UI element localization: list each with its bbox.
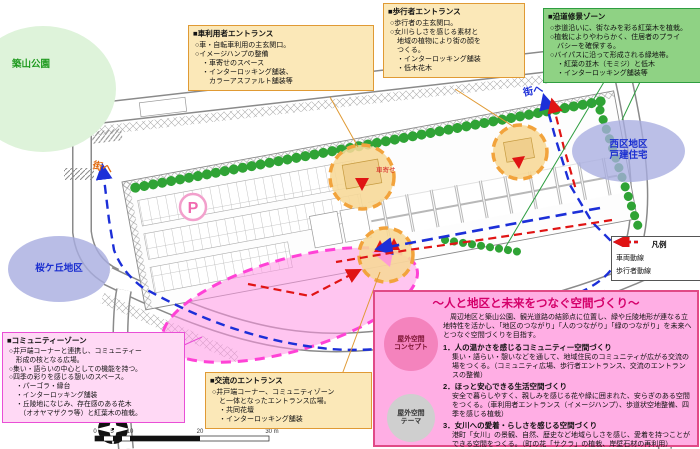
legend-box: 凡例 車両動線 歩行者動線 [611, 236, 700, 281]
parking-icon: P [180, 194, 206, 220]
pedestrian-entrance-zone [493, 125, 547, 179]
note-title: ■コミュニティーゾーン [7, 336, 180, 346]
concept-panel: ～人と地区と未来をつなぐ空間づくり～ 屋外空間 コンセプト 屋外空間 テーマ 周… [373, 290, 699, 447]
note-title: ■車利用者エントランス [193, 29, 369, 39]
svg-text:P: P [188, 200, 199, 217]
exchange-entrance-zone [359, 228, 413, 282]
note-pedestrian-entrance: ■歩行者エントランス ○歩行者の主玄関口。 ○女川らしさを感じる素材と 地域の植… [383, 3, 525, 78]
outdoor-space-concept-badge: 屋外空間 コンセプト [384, 317, 438, 371]
outdoor-space-theme-badge: 屋外空間 テーマ [387, 394, 435, 442]
theme-1-head: 1．人の温かさを感じるコミュニティー空間づくり [443, 343, 692, 353]
pedestrian-route-arrow-icon [612, 237, 640, 247]
concept-panel-body: 周辺地区と築山公園、観光道路の結節点に位置し、緑や丘陵地形が連なる立地特性を活か… [443, 313, 692, 449]
park-label: 築山公園 [12, 60, 50, 71]
theme-2-body: 安全で暮らしやすく、親しみを感じる花や緑に囲まれた、安らぎのある空間をつくる。（… [452, 392, 692, 419]
svg-text:20: 20 [197, 429, 204, 435]
theme-2-head: 2．ほっと安心できる生活空間づくり [443, 382, 692, 392]
housing-unit [309, 211, 342, 248]
car-stop-label: 車寄せ [376, 165, 396, 174]
theme-3-body: 港町「女川」の景観、自然、歴史など地域らしさを感じ、愛着を持つことができる空間を… [452, 431, 692, 449]
theme-1-body: 集い・語らい・憩いなどを通して、地域住民のコミュニティが広がる交流の場をつくる。… [452, 353, 692, 380]
west-district-zone: 西区地区 戸建住宅 [572, 120, 685, 182]
legend-label: 歩行者動線 [616, 266, 651, 276]
concept-text: 周辺地区と築山公園、観光道路の結節点に位置し、緑や丘陵地形が連なる立地特性を活か… [443, 313, 692, 340]
note-exchange-entrance: ■交流のエントランス ○井戸端コーナー、コミュニティゾーン と一体となったエント… [205, 372, 372, 429]
svg-text:30 m: 30 m [265, 429, 278, 435]
note-title: ■歩行者エントランス [388, 7, 520, 17]
car-entrance-zone [330, 145, 394, 209]
sakura-district-label: 桜ケ丘地区 [35, 264, 83, 275]
svg-text:0: 0 [93, 429, 97, 435]
note-community-zone: ■コミュニティーゾーン ○井戸端コーナーと連携し、コミュニティー 形成の核となる… [2, 332, 185, 423]
note-title: ■沿道修景ゾーン [548, 12, 700, 22]
landscape-plan-page: 街へ 街へ 車寄せ P N 0 5 10 20 30 m 築山公園 [0, 0, 700, 449]
crosswalk-hatch [64, 168, 94, 180]
legend-item-vehicle: 車両動線 [616, 253, 700, 263]
concept-panel-title: ～人と地区と未来をつなぐ空間づくり～ [375, 295, 697, 311]
legend-label: 車両動線 [616, 253, 644, 263]
note-title: ■交流のエントランス [210, 376, 367, 386]
legend-item-pedestrian: 歩行者動線 [616, 266, 700, 276]
theme-3-head: 3．女川への愛着・らしさを感じる空間づくり [443, 421, 692, 431]
svg-text:10: 10 [127, 429, 134, 435]
west-district-label-line2: 戸建住宅 [609, 151, 647, 162]
note-car-entrance: ■車利用者エントランス ○車・自転車利用の主玄関口。 ○イメージハンプの整備 ・… [188, 25, 374, 91]
note-roadside-landscape-zone: ■沿道修景ゾーン ○歩道沿いに、街なみを彩る紅葉木を植栽。 ○植栽によりやわらか… [543, 8, 700, 83]
sakura-district-zone: 桜ケ丘地区 [8, 236, 110, 302]
